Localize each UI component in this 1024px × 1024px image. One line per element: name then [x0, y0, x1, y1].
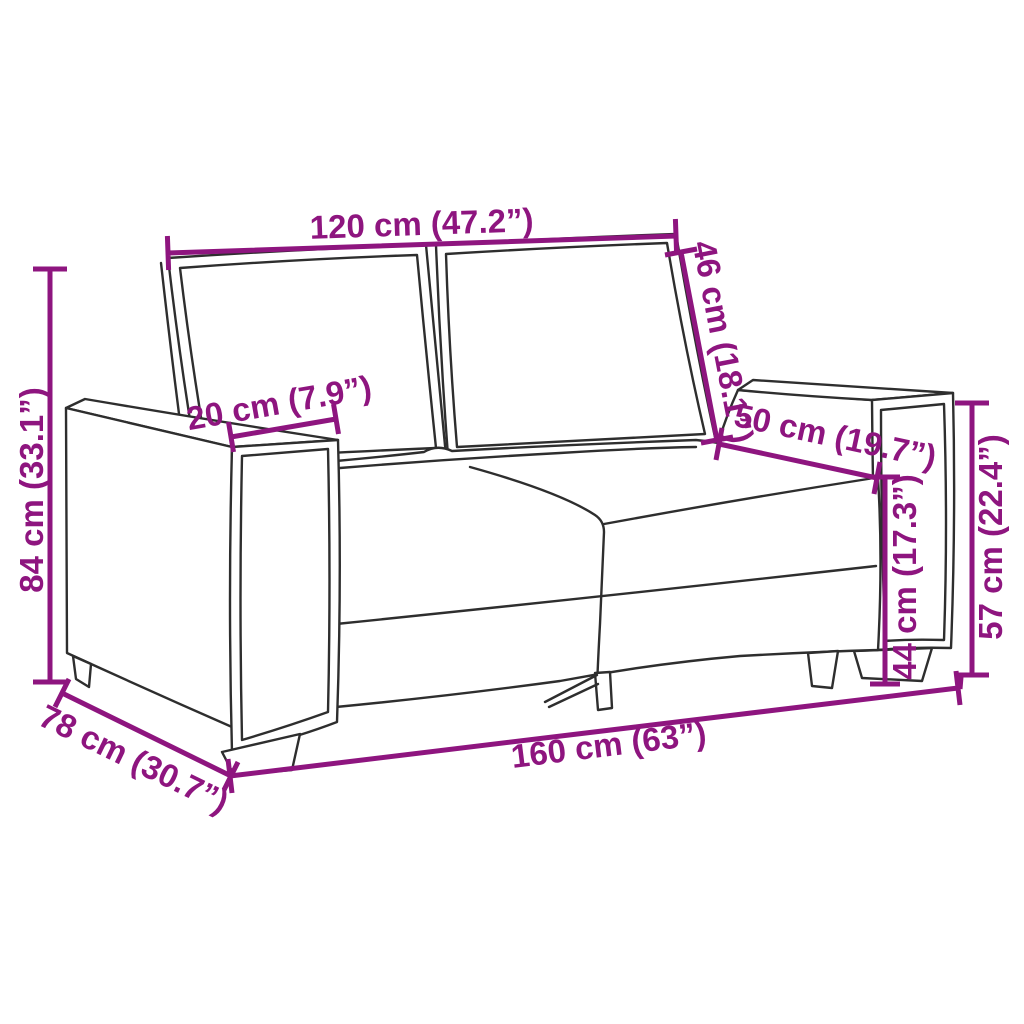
sofa-back-cushion-right [436, 234, 716, 456]
diagram-canvas: 120 cm (47.2”) 46 cm (18.1”) 20 cm (7.9”… [0, 0, 1024, 1024]
dimension-overall-width-label: 160 cm (63”) [509, 714, 708, 775]
sofa-dimension-diagram: 120 cm (47.2”) 46 cm (18.1”) 20 cm (7.9”… [0, 0, 1024, 1024]
dimension-back-width-label: 120 cm (47.2”) [309, 201, 534, 246]
dimension-armrest-height-label: 57 cm (22.4”) [972, 434, 1009, 639]
armrest-left-front-face [230, 440, 340, 753]
sofa-leg-front-right [808, 651, 838, 688]
sofa-leg-middle [595, 672, 612, 710]
sofa-line-drawing [66, 234, 954, 775]
sofa-seat-base [336, 440, 881, 710]
dimension-armrest-height: 57 cm (22.4”) [955, 403, 1009, 689]
dimension-overall-height: 84 cm (33.1”) [13, 269, 67, 682]
armrest-left-side-face [66, 408, 232, 727]
dimension-overall-height-label: 84 cm (33.1”) [13, 387, 50, 592]
dimension-seat-height-label: 44 cm (17.3”) [886, 474, 923, 679]
sofa-armrest-left [66, 399, 340, 775]
back-cushion-right-outline [436, 234, 716, 456]
